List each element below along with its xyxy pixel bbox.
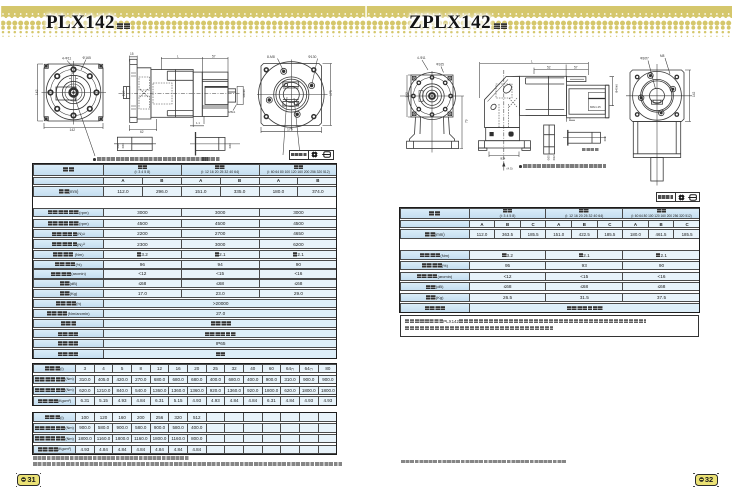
svg-text:8-M8: 8-M8 xyxy=(267,55,275,59)
svg-text:Φ38: Φ38 xyxy=(116,143,120,149)
svg-text:L: L xyxy=(531,60,533,64)
svg-text:4-Φ11: 4-Φ11 xyxy=(62,57,71,61)
svg-text:52: 52 xyxy=(547,66,551,70)
svg-text:142: 142 xyxy=(692,91,696,97)
svg-text:Φ130: Φ130 xyxy=(308,55,316,59)
svg-text:Φ40: Φ40 xyxy=(121,143,125,149)
svg-text:Φ32: Φ32 xyxy=(552,155,556,161)
svg-text:1.1: 1.1 xyxy=(196,121,200,125)
svg-text:79: 79 xyxy=(465,119,469,123)
svg-text:(4.5): (4.5) xyxy=(507,167,513,171)
svg-text:Φ38: Φ38 xyxy=(122,90,126,96)
svg-text:Φ165: Φ165 xyxy=(436,62,444,66)
svg-text:M8x1.25: M8x1.25 xyxy=(590,105,601,109)
svg-text:Φ165: Φ165 xyxy=(83,56,91,60)
svg-text:175: 175 xyxy=(287,127,293,131)
svg-text:Φ30f7: Φ30f7 xyxy=(640,56,649,60)
svg-text:Φ24: Φ24 xyxy=(500,157,506,161)
svg-text:57: 57 xyxy=(574,66,578,70)
svg-text:15: 15 xyxy=(130,52,134,56)
svg-text:Φ35: Φ35 xyxy=(547,155,551,161)
svg-text:4-Φ11: 4-Φ11 xyxy=(417,56,426,60)
svg-text:14: 14 xyxy=(71,72,75,76)
svg-text:Φ40: Φ40 xyxy=(603,136,607,142)
svg-text:175: 175 xyxy=(329,90,333,96)
svg-text:L: L xyxy=(177,54,179,58)
svg-text:M8: M8 xyxy=(660,54,665,58)
svg-text:M8x1: M8x1 xyxy=(229,110,236,114)
svg-text:Φ40: Φ40 xyxy=(228,143,232,149)
svg-text:Φ40k6: Φ40k6 xyxy=(615,84,619,93)
svg-text:57: 57 xyxy=(212,54,216,58)
svg-text:142: 142 xyxy=(70,128,76,132)
svg-text:62: 62 xyxy=(140,130,144,134)
svg-text:142: 142 xyxy=(405,92,409,98)
svg-text:Φ40k6: Φ40k6 xyxy=(242,89,246,98)
svg-text:142: 142 xyxy=(35,89,39,95)
